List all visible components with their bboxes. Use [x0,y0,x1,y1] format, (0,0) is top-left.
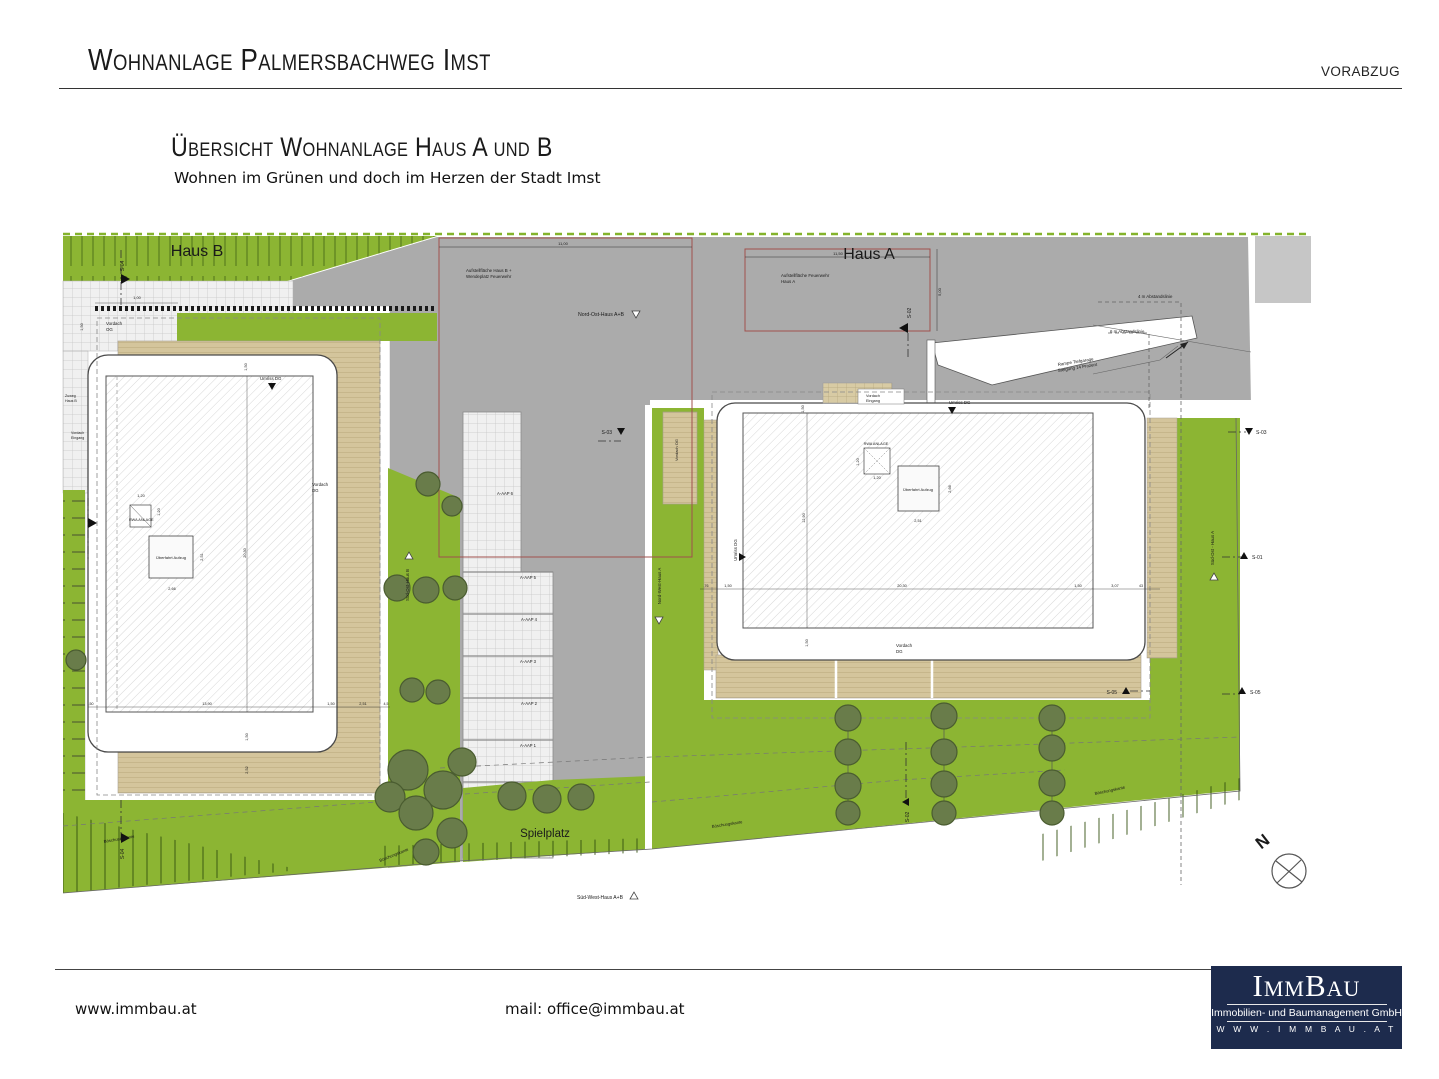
plan-label: S-05 [1250,690,1261,696]
plan-label: 11,00 [558,241,568,246]
plan-label: 20,30 [897,584,907,588]
plan-label: A-AAP 6 [497,491,514,496]
plan-label: DG [896,649,903,654]
plan-label: N [1252,830,1273,853]
tree-icon [1039,735,1065,761]
plan-label: Umriss DG [949,400,971,405]
plan-label: S-04 [120,849,126,860]
tree-icon [1040,801,1064,825]
plan-label: 1,00 [133,296,140,300]
plan-label: S-03 [601,430,612,436]
plan-label: Haus A [781,279,795,284]
logo-url: W W W . I M M B A U . A T [1211,1023,1402,1036]
plan-label: 1,20 [157,508,161,515]
plan-label: 5,00 [937,287,942,296]
plan-label: Überfahrt Aufzug [156,555,186,560]
tree-icon [399,796,433,830]
plan-label: A-AAP 5 [520,575,537,580]
plan-label: 2,51 [359,702,366,706]
plan-label: 1,50 [327,702,334,706]
plan-label: 1,50 [244,363,248,370]
plan-label: Aufstellfläche Feuerwehr [781,273,830,278]
plan-label: S-02 [907,308,913,319]
plan-label: Umriss DG [733,539,738,561]
tree-icon [931,771,957,797]
tree-icon [413,577,439,603]
plan-label: 20,30 [243,548,247,558]
plan-label: Haus B [171,243,223,260]
plan-label: Vordach [866,394,880,398]
plan-label: 2,52 [245,766,249,773]
plan-label: 6 m Abstandslinie [1110,329,1145,334]
plan-label: Süd-Ost - Haus A [1210,531,1215,565]
plan-label: RWA ANLAGE [864,442,889,446]
plan-label: 1,50 [1074,584,1081,588]
plan-label: 1,50 [805,639,809,646]
plan-label: OG [106,327,113,332]
plan-label: 1,50 [80,323,84,330]
plan-label: 1,20 [137,494,144,498]
plan-label: 1,50 [801,405,805,412]
plan-label: Süd-West-Haus A+B [577,895,624,901]
tree-icon [931,739,957,765]
tree-icon [426,680,450,704]
plan-label: ,76 [704,584,709,588]
plan-label: Eingang [866,399,880,403]
tree-icon [835,705,861,731]
section-marker-icon [630,892,638,899]
tree-icon [932,801,956,825]
footer-divider [55,969,1211,970]
tree-icon [413,839,439,865]
plan-label: 43 [1139,584,1143,588]
plan-label: Vordach [71,431,84,435]
plan-label: Vordach OG [674,439,679,461]
plan-label: 1,20 [873,476,880,480]
plan-label: Vordach [106,321,123,326]
tree-icon [835,773,861,799]
tree-icon [533,785,561,813]
terrain [63,236,1311,893]
plan-label: 13,90 [202,702,212,706]
plan-label: 2,51 [200,553,204,560]
plan-label: Zuweg [65,394,76,398]
plan-label: 1,50 [724,584,731,588]
plan-label: A-AAP 3 [520,659,537,664]
tree-icon [400,678,424,702]
plan-sheet: Wohnanlage Palmersbachweg Imst VORABZUG … [0,0,1439,1079]
plan-label: 2,51 [914,519,921,523]
logo-divider [1227,1021,1387,1022]
plan-label: 2,66 [168,587,175,591]
tree-icon [568,784,594,810]
plan-label: Süd-Ost-Haus B [405,569,410,601]
tree-icon [437,818,467,848]
tree-icon [416,472,440,496]
plan-label: Vordach [896,643,913,648]
plan-label: Haus A [843,246,895,263]
tree-icon [66,650,86,670]
plan-label: S-04 [120,261,126,272]
plan-label: Vordach [312,482,329,487]
plan-label: S-03 [1256,430,1267,436]
tree-icon [1039,705,1065,731]
tree-icon [931,703,957,729]
plan-label: S-02 [905,812,911,823]
plan-label: 2,66 [948,485,952,492]
plan-label: ,50 [89,702,94,706]
tree-icon [443,576,467,600]
plan-label: A-AAP 2 [521,701,538,706]
tree-icon [1039,770,1065,796]
logo-name: ImmBau [1211,969,1402,1003]
plan-label: 11,50 [833,251,843,256]
plan-label: A-AAP 1 [520,743,537,748]
plan-label: Nord-Ost-Haus A+B [578,312,625,318]
plan-label: RWA ANLAGE [129,518,154,522]
plan-label: 1,50 [245,733,249,740]
north-compass-icon [1272,854,1306,888]
plan-label: 3,07 [1111,584,1118,588]
plan-label: 12,90 [802,513,806,523]
plan-label: 4,5 [384,702,389,706]
plan-label: A-AAP 4 [521,617,538,622]
plan-label: S-05 [1106,690,1117,696]
footer-website: www.immbau.at [75,1000,197,1018]
plan-label: Wendeplatz Feuerwehr [466,274,512,279]
plan-label: Eingang [71,436,84,440]
tree-icon [448,748,476,776]
footer-email: mail: office@immbau.at [505,1000,685,1018]
plan-label: 4 m Abstandslinie [1138,294,1173,299]
tree-icon [836,801,860,825]
plan-label: Spielplatz [520,828,570,840]
logo-divider [1227,1004,1387,1005]
plan-label: Umriss DG [260,376,282,381]
plan-label: DG [312,488,319,493]
site-plan: Haus BHaus AAufstellfläche Haus B +Wende… [0,0,1439,1079]
plan-label: 1,20 [856,458,860,465]
plan-label: Nord-West-Haus A [657,568,662,605]
tree-icon [442,496,462,516]
plan-label: Haus B [65,399,77,403]
logo-subtitle: Immobilien- und Baumanagement GmbH [1211,1006,1402,1020]
tree-icon [498,782,526,810]
plan-label: Überfahrt Aufzug [903,487,933,492]
plan-label: Aufstellfläche Haus B + [466,268,512,273]
immbau-logo: ImmBau Immobilien- und Baumanagement Gmb… [1211,966,1402,1049]
plan-label: S-01 [1252,555,1263,561]
tree-icon [835,739,861,765]
